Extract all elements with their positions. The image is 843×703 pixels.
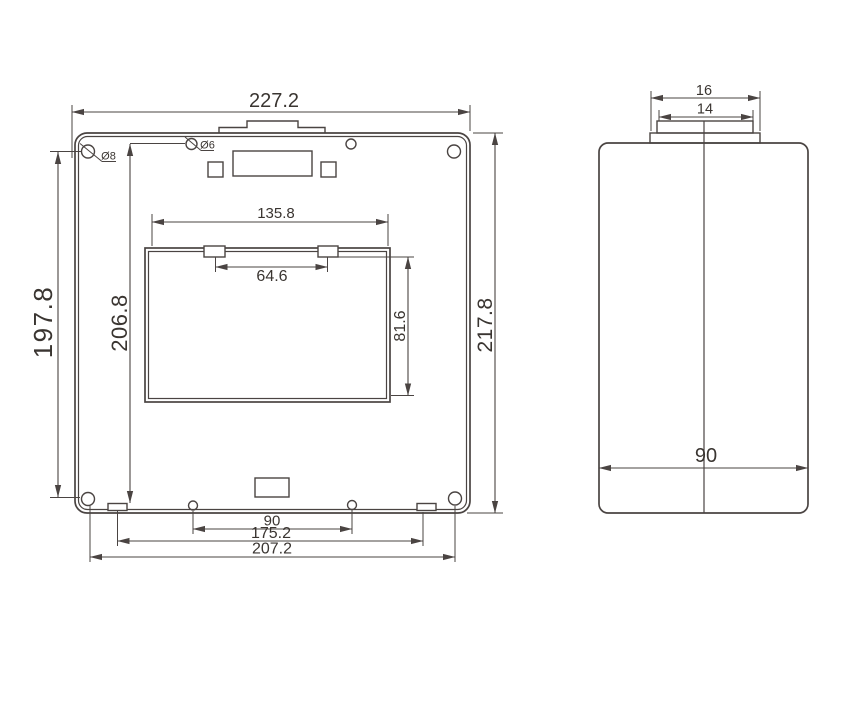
front-view: Ø8 Ø6 227.2 197.8 206.8 217.8 135.8 64.6 bbox=[28, 90, 503, 562]
side-cap-top bbox=[657, 121, 753, 133]
top-mount-tab bbox=[219, 121, 325, 133]
top-square-cutout-right bbox=[321, 162, 336, 177]
window-clip-left bbox=[204, 246, 225, 257]
small-hole-top-left bbox=[186, 139, 197, 150]
window-clip-right bbox=[318, 246, 338, 257]
technical-drawing-canvas: Ø8 Ø6 227.2 197.8 206.8 217.8 135.8 64.6 bbox=[0, 0, 843, 703]
bottom-tab-right bbox=[417, 504, 436, 511]
dim-right-height: 217.8 bbox=[474, 297, 497, 352]
top-square-cutout-left bbox=[208, 162, 223, 177]
corner-hole-bottom-right bbox=[449, 492, 462, 505]
small-hole-top-right bbox=[346, 139, 356, 149]
top-hole-dia-label: Ø6 bbox=[200, 140, 215, 152]
corner-hole-dia-label: Ø8 bbox=[101, 151, 116, 163]
side-view: 16 14 90 bbox=[599, 83, 808, 513]
corner-hole-bottom-left bbox=[82, 493, 95, 506]
dim-left-height: 197.8 bbox=[28, 286, 58, 359]
bottom-slot bbox=[255, 478, 289, 497]
dim-corner-hole-spacing: 207.2 bbox=[252, 541, 292, 558]
dim-body-depth: 90 bbox=[695, 445, 717, 467]
dim-cap-inner: 14 bbox=[697, 102, 713, 118]
dimension-drawing: Ø8 Ø6 227.2 197.8 206.8 217.8 135.8 64.6 bbox=[0, 0, 843, 703]
dim-bottom-tab-spacing: 175.2 bbox=[251, 525, 291, 542]
bottom-tab-left bbox=[108, 504, 127, 511]
dim-inner-height: 206.8 bbox=[107, 294, 132, 352]
top-slot bbox=[233, 151, 312, 176]
small-hole-bottom-right bbox=[348, 501, 357, 510]
dim-overall-width: 227.2 bbox=[249, 90, 299, 112]
dim-cap-outer: 16 bbox=[696, 83, 712, 99]
side-cap-base bbox=[650, 133, 760, 143]
corner-hole-top-right bbox=[448, 145, 461, 158]
small-hole-bottom-left bbox=[189, 501, 198, 510]
enclosure-outline-outer bbox=[75, 133, 470, 513]
dim-window-width: 135.8 bbox=[257, 205, 295, 222]
dim-clip-spacing: 64.6 bbox=[256, 268, 287, 285]
dim-window-height: 81.6 bbox=[392, 310, 409, 341]
